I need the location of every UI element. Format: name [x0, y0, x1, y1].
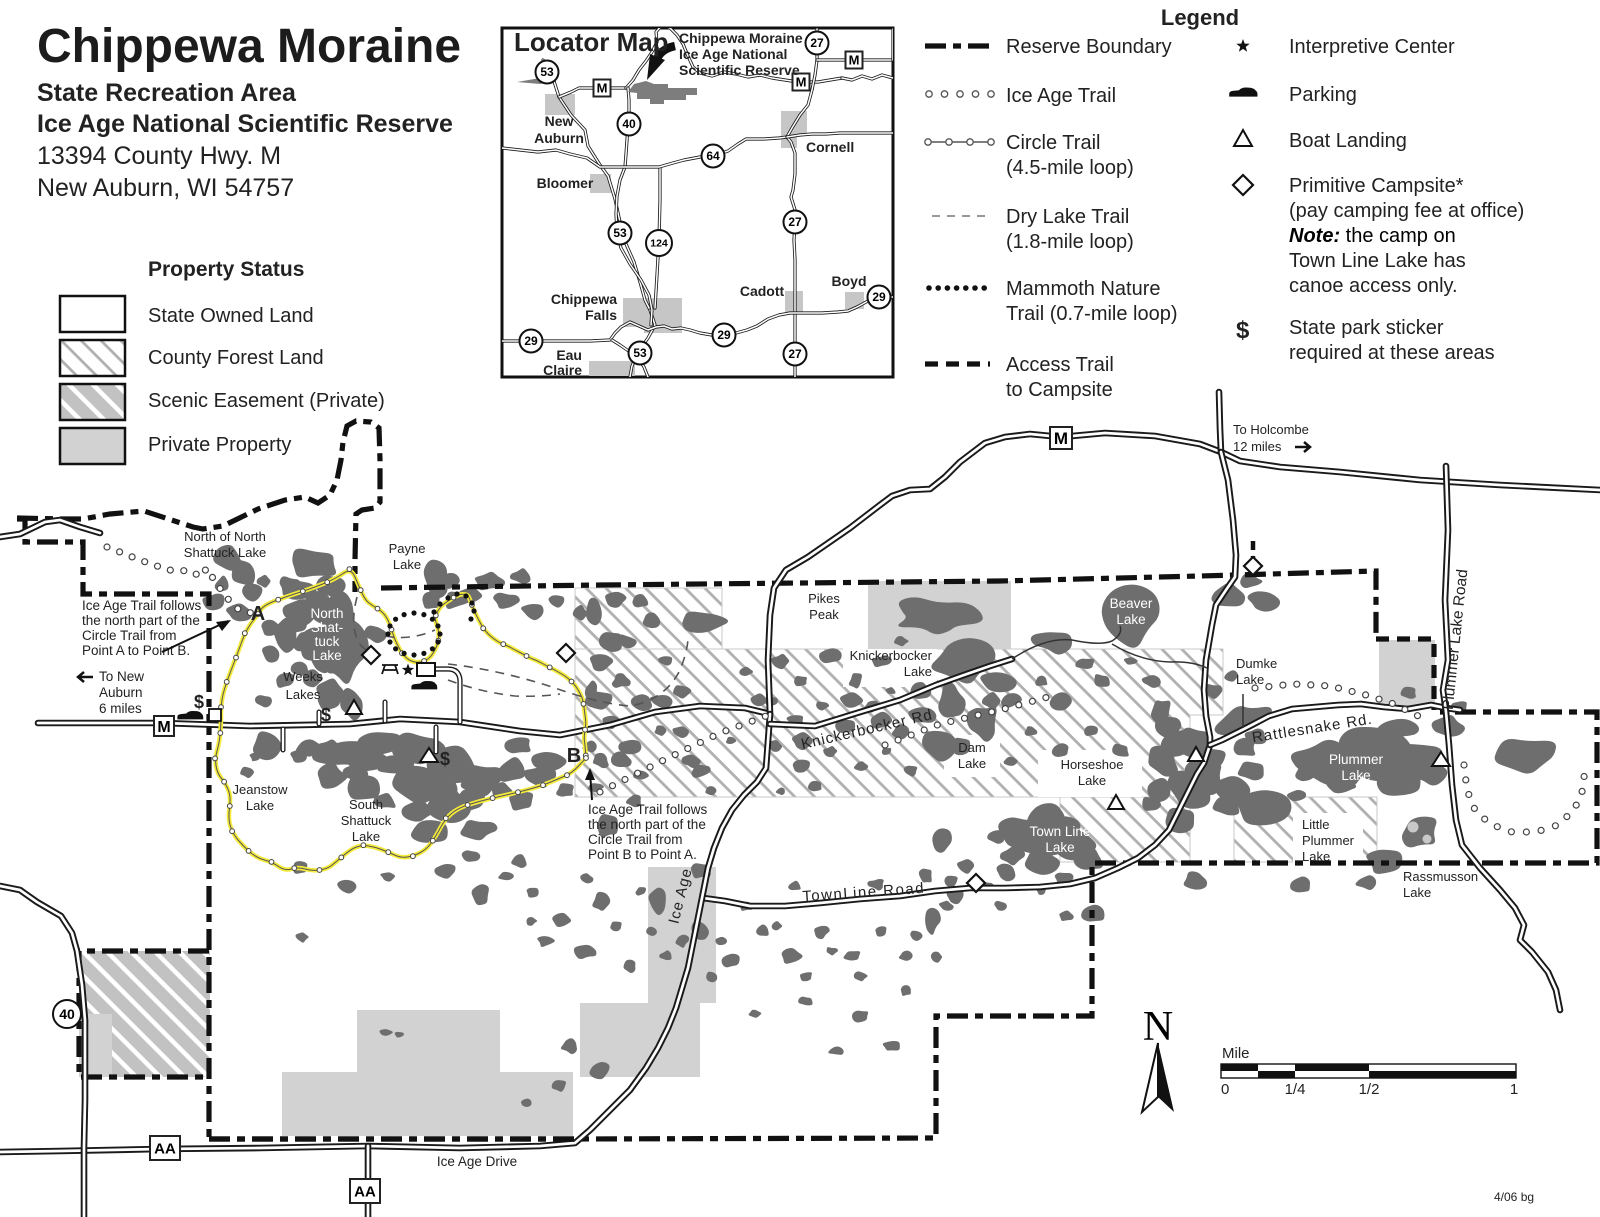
svg-text:Point A to Point B.: Point A to Point B. — [82, 643, 190, 658]
svg-text:124: 124 — [650, 238, 668, 250]
svg-text:Boat Landing: Boat Landing — [1289, 130, 1407, 152]
svg-text:Mile: Mile — [1222, 1045, 1250, 1062]
svg-text:Chippewa: Chippewa — [551, 291, 617, 307]
svg-text:Rassmusson: Rassmusson — [1403, 869, 1478, 884]
svg-text:64: 64 — [706, 149, 720, 163]
svg-text:Town Line: Town Line — [1030, 824, 1091, 839]
svg-text:Shattuck Lake: Shattuck Lake — [184, 545, 266, 560]
svg-text:M: M — [1054, 429, 1068, 448]
svg-text:Scenic Easement (Private): Scenic Easement (Private) — [148, 390, 385, 412]
svg-text:12 miles: 12 miles — [1233, 439, 1282, 454]
svg-text:Dry Lake Trail: Dry Lake Trail — [1006, 206, 1129, 228]
svg-text:53: 53 — [633, 346, 647, 360]
svg-text:Ice Age Trail follows: Ice Age Trail follows — [82, 598, 202, 613]
svg-text:South: South — [349, 797, 383, 812]
svg-text:Peak: Peak — [809, 607, 839, 622]
svg-text:Lake: Lake — [393, 557, 421, 572]
svg-text:Lake: Lake — [246, 798, 274, 813]
svg-text:Jeanstow: Jeanstow — [233, 782, 289, 797]
svg-text:Circle Trail: Circle Trail — [1006, 132, 1100, 154]
svg-text:Circle Trail from: Circle Trail from — [82, 628, 177, 643]
svg-text:Lake: Lake — [904, 664, 932, 679]
svg-text:New Auburn, WI 54757: New Auburn, WI 54757 — [37, 174, 294, 202]
svg-text:Bloomer: Bloomer — [537, 175, 594, 191]
svg-text:Chippewa Moraine: Chippewa Moraine — [679, 30, 803, 46]
svg-text:Note: the camp on: Note: the camp on — [1289, 225, 1456, 247]
svg-text:Horseshoe: Horseshoe — [1061, 757, 1124, 772]
svg-text:Auburn: Auburn — [99, 685, 143, 700]
svg-text:Legend: Legend — [1161, 5, 1239, 30]
svg-text:Circle Trail from: Circle Trail from — [588, 832, 683, 847]
svg-text:Reserve Boundary: Reserve Boundary — [1006, 36, 1172, 58]
svg-text:M: M — [157, 719, 170, 736]
svg-text:Boyd: Boyd — [832, 273, 867, 289]
svg-text:Plummer: Plummer — [1329, 752, 1384, 767]
svg-text:the north part of the: the north part of the — [82, 613, 200, 628]
svg-text:Trail (0.7-mile loop): Trail (0.7-mile loop) — [1006, 303, 1178, 325]
svg-text:$: $ — [440, 749, 450, 769]
svg-text:B: B — [567, 745, 581, 767]
svg-text:AA: AA — [354, 1183, 376, 1200]
svg-text:County Forest Land: County Forest Land — [148, 347, 324, 369]
svg-text:North: North — [310, 606, 343, 621]
svg-text:Pikes: Pikes — [808, 591, 840, 606]
svg-text:State Owned Land: State Owned Land — [148, 305, 314, 327]
svg-text:M: M — [849, 53, 860, 68]
svg-text:Shat-: Shat- — [311, 620, 343, 635]
svg-text:canoe access only.: canoe access only. — [1289, 275, 1458, 297]
svg-text:Lake: Lake — [1302, 849, 1330, 864]
svg-text:Dam: Dam — [958, 740, 985, 755]
svg-text:40: 40 — [622, 117, 636, 131]
svg-text:AA: AA — [154, 1140, 176, 1157]
svg-text:the north part of the: the north part of the — [588, 817, 706, 832]
svg-text:Lake: Lake — [958, 756, 986, 771]
svg-text:0: 0 — [1221, 1081, 1229, 1098]
svg-text:$: $ — [1236, 317, 1250, 344]
svg-text:Scientific Reserve: Scientific Reserve — [679, 62, 800, 78]
svg-text:Claire: Claire — [543, 362, 582, 378]
svg-text:Little: Little — [1302, 817, 1329, 832]
svg-text:Lake: Lake — [1116, 612, 1145, 627]
svg-text:$: $ — [321, 705, 331, 725]
svg-text:(pay camping fee at office): (pay camping fee at office) — [1289, 200, 1524, 222]
svg-text:Eau: Eau — [556, 347, 582, 363]
svg-text:29: 29 — [717, 328, 731, 342]
svg-text:Ice Age Trail follows: Ice Age Trail follows — [588, 802, 708, 817]
svg-text:Chippewa Moraine: Chippewa Moraine — [37, 20, 461, 73]
svg-text:13394 County Hwy. M: 13394 County Hwy. M — [37, 142, 281, 170]
svg-text:1/2: 1/2 — [1359, 1081, 1380, 1098]
svg-text:6 miles: 6 miles — [99, 701, 142, 716]
svg-text:Lake: Lake — [1045, 840, 1074, 855]
svg-text:required at these areas: required at these areas — [1289, 342, 1495, 364]
svg-text:State park sticker: State park sticker — [1289, 317, 1444, 339]
svg-text:4/06 bg: 4/06 bg — [1494, 1190, 1534, 1204]
svg-text:Cornell: Cornell — [806, 139, 854, 155]
svg-text:Cadott: Cadott — [740, 283, 785, 299]
svg-text:$: $ — [194, 692, 204, 712]
svg-text:Weeks: Weeks — [283, 669, 323, 684]
svg-text:27: 27 — [810, 36, 824, 50]
svg-text:29: 29 — [872, 290, 886, 304]
svg-text:1/4: 1/4 — [1285, 1081, 1306, 1098]
svg-text:Primitive Campsite*: Primitive Campsite* — [1289, 175, 1464, 197]
svg-text:State Recreation Area: State Recreation Area — [37, 79, 297, 107]
svg-text:Shattuck: Shattuck — [341, 813, 392, 828]
svg-text:Ice Age Drive: Ice Age Drive — [437, 1154, 517, 1169]
svg-text:Ice Age Trail: Ice Age Trail — [1006, 85, 1116, 107]
svg-text:Property Status: Property Status — [148, 258, 304, 281]
svg-text:tuck: tuck — [315, 634, 340, 649]
svg-text:40: 40 — [59, 1006, 75, 1022]
svg-text:Lake: Lake — [1341, 768, 1370, 783]
svg-text:(4.5-mile loop): (4.5-mile loop) — [1006, 157, 1134, 179]
svg-text:Mammoth Nature: Mammoth Nature — [1006, 278, 1161, 300]
svg-text:Lake: Lake — [312, 648, 341, 663]
svg-text:Lake: Lake — [352, 829, 380, 844]
svg-text:To Holcombe: To Holcombe — [1233, 422, 1309, 437]
svg-text:Locator Map: Locator Map — [514, 27, 669, 57]
svg-text:A: A — [251, 603, 265, 625]
svg-text:Dumke: Dumke — [1236, 656, 1277, 671]
svg-text:1: 1 — [1510, 1081, 1518, 1098]
svg-text:29: 29 — [524, 334, 538, 348]
svg-text:Plummer: Plummer — [1302, 833, 1355, 848]
svg-text:53: 53 — [613, 226, 627, 240]
svg-text:Lake: Lake — [1403, 885, 1431, 900]
svg-text:Town Line Lake has: Town Line Lake has — [1289, 250, 1466, 272]
svg-text:Lakes: Lakes — [286, 687, 321, 702]
svg-text:Private Property: Private Property — [148, 434, 291, 456]
svg-text:Lake: Lake — [1236, 672, 1264, 687]
svg-text:Auburn: Auburn — [534, 130, 584, 146]
svg-text:Point B to Point A.: Point B to Point A. — [588, 847, 697, 862]
svg-text:to Campsite: to Campsite — [1006, 379, 1113, 401]
svg-text:53: 53 — [540, 65, 554, 79]
svg-text:Payne: Payne — [389, 541, 426, 556]
svg-text:27: 27 — [788, 347, 802, 361]
svg-text:Ice Age National Scientific Re: Ice Age National Scientific Reserve — [37, 110, 453, 138]
svg-text:Interpretive Center: Interpretive Center — [1289, 36, 1455, 58]
svg-text:Falls: Falls — [585, 307, 617, 323]
svg-text:North of North: North of North — [184, 529, 266, 544]
svg-text:(1.8-mile loop): (1.8-mile loop) — [1006, 231, 1134, 253]
svg-text:Access Trail: Access Trail — [1006, 354, 1114, 376]
svg-text:New: New — [545, 113, 574, 129]
svg-text:To New: To New — [99, 669, 144, 684]
svg-text:Ice Age National: Ice Age National — [679, 46, 787, 62]
svg-text:Knickerbocker: Knickerbocker — [850, 648, 933, 663]
svg-text:Parking: Parking — [1289, 84, 1357, 106]
svg-text:Lake: Lake — [1078, 773, 1106, 788]
svg-text:M: M — [597, 81, 608, 96]
svg-text:Beaver: Beaver — [1110, 596, 1153, 611]
svg-text:27: 27 — [788, 215, 802, 229]
